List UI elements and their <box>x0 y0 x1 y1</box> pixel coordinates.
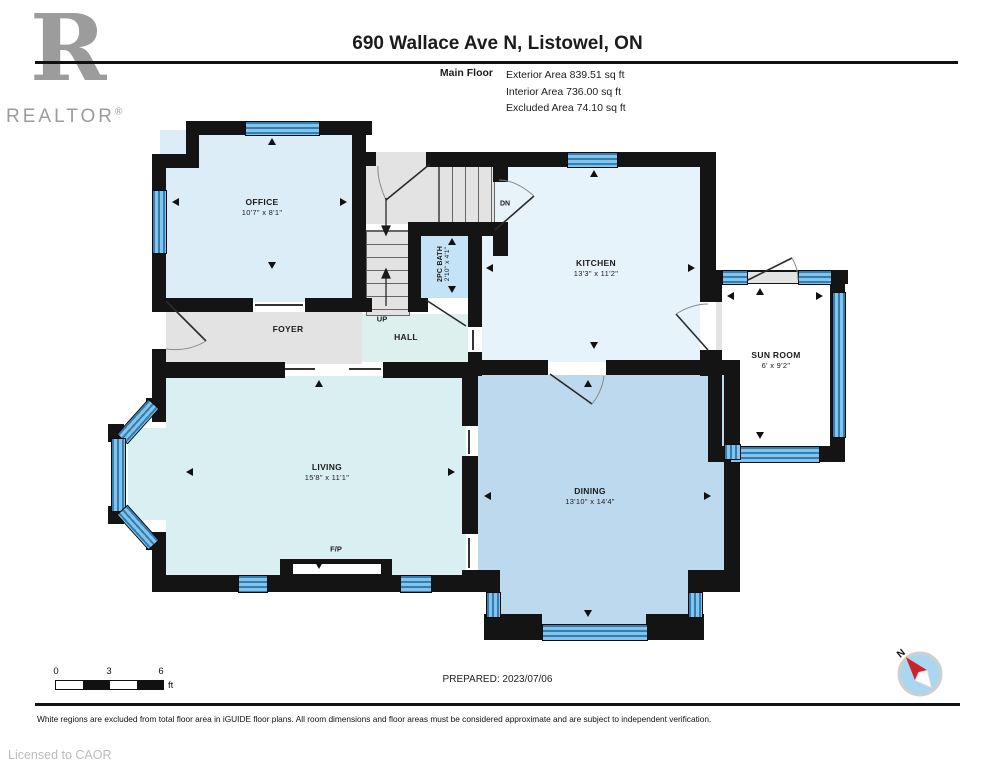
door-leaf <box>166 301 206 341</box>
door-arc <box>792 258 798 280</box>
license-text: Licensed to CAOR <box>8 748 112 762</box>
dim-arrow-icon <box>448 286 456 293</box>
dim-arrow-icon <box>704 492 711 500</box>
sunroom-label: SUN ROOM 6' x 9'2" <box>751 350 800 370</box>
fireplace-label: F/P <box>330 545 342 554</box>
dim-arrow-icon <box>340 198 347 206</box>
stair-arrowhead-up <box>382 269 390 278</box>
office-label: OFFICE 10'7" x 8'1" <box>242 197 283 217</box>
dim-arrow-icon <box>688 264 695 272</box>
dim-arrow-icon <box>448 238 456 245</box>
door-arc <box>166 341 206 350</box>
door-leaf <box>550 374 592 404</box>
door-overlay <box>0 0 995 768</box>
dim-arrow-icon <box>486 264 493 272</box>
disclaimer-text: White regions are excluded from total fl… <box>37 714 962 724</box>
dim-arrow-icon <box>448 468 455 476</box>
dim-arrow-icon <box>268 262 276 269</box>
dim-arrow-icon <box>315 380 323 387</box>
dim-arrow-icon <box>268 138 276 145</box>
kitchen-label: KITCHEN 13'3" x 11'2" <box>574 258 618 278</box>
hall-label: HALL <box>394 332 418 342</box>
foyer-label: FOYER <box>273 324 304 334</box>
dim-arrow-icon <box>315 562 323 569</box>
dim-arrow-icon <box>727 292 734 300</box>
door-arc <box>378 166 386 200</box>
stairs-up-label: UP <box>377 315 387 324</box>
footer-divider <box>35 703 960 706</box>
door-leaf <box>676 314 708 350</box>
door-arc <box>499 180 534 196</box>
stair-arrowhead-down <box>382 226 390 235</box>
dim-arrow-icon <box>584 610 592 617</box>
dim-arrow-icon <box>756 288 764 295</box>
dim-arrow-icon <box>484 492 491 500</box>
dim-arrow-icon <box>584 380 592 387</box>
stairs-dn-label: DN <box>500 201 510 208</box>
dim-arrow-icon <box>186 468 193 476</box>
door-leaf <box>386 164 430 200</box>
living-label: LIVING 15'8" x 11'1" <box>305 462 349 482</box>
floorplan-page: R REALTOR® 690 Wallace Ave N, Listowel, … <box>0 0 995 768</box>
prepared-date: PREPARED: 2023/07/06 <box>0 674 995 685</box>
dim-arrow-icon <box>172 198 179 206</box>
dim-arrow-icon <box>756 432 764 439</box>
dim-arrow-icon <box>816 292 823 300</box>
door-leaf <box>748 258 792 280</box>
dim-arrow-icon <box>590 342 598 349</box>
dim-arrow-icon <box>590 170 598 177</box>
door-arc <box>676 304 708 314</box>
bath-label: 2PC BATH 2'10" x 4'1" <box>437 246 451 282</box>
compass: N <box>890 642 950 702</box>
dining-label: DINING 13'10" x 14'4" <box>565 486 615 506</box>
door-leaf <box>426 300 466 326</box>
door-arc <box>592 376 604 404</box>
